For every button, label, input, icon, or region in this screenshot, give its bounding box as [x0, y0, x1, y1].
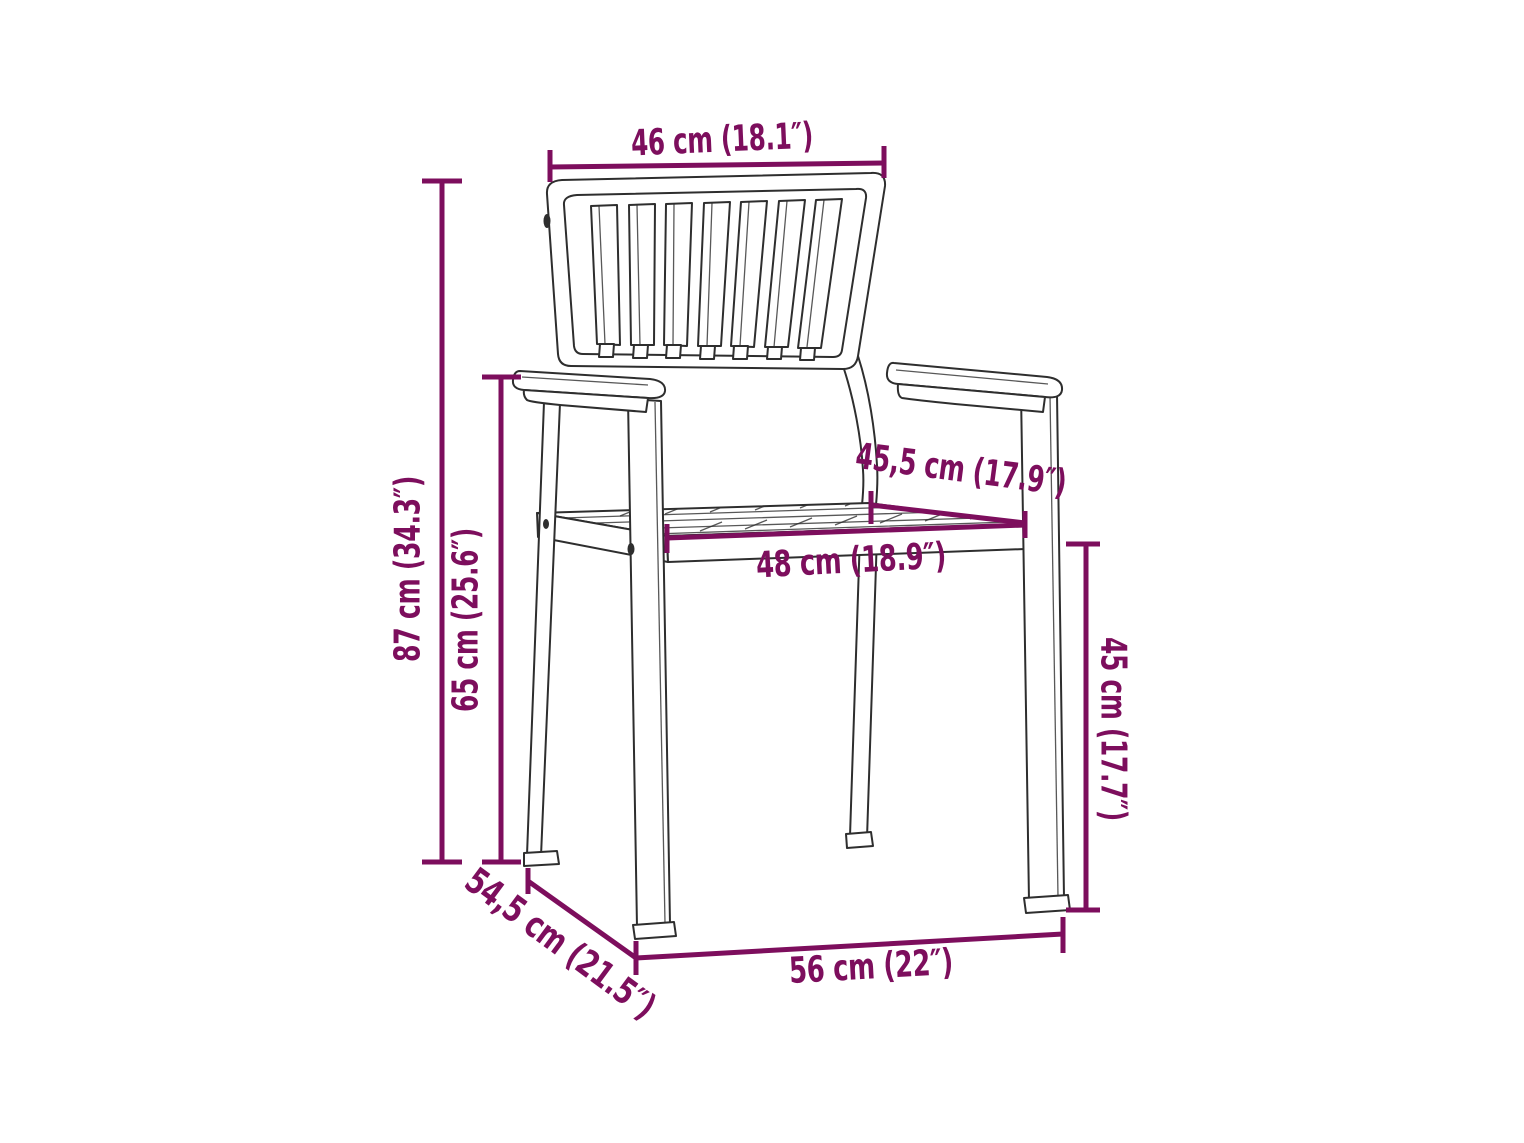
backrest-slat	[664, 203, 692, 346]
backrest-slat	[629, 204, 655, 345]
dim-floor-depth-label: 54,5 cm (21.5″)	[457, 860, 663, 1027]
backrest-right-tube	[844, 356, 877, 505]
rear-right-foot-cap	[846, 832, 873, 848]
dim-seat-height-label: 45 cm (17.7″)	[1093, 637, 1134, 821]
front-left-foot-cap	[633, 922, 676, 939]
screw-dot	[628, 543, 635, 555]
dim-backrest-width-line	[550, 163, 884, 167]
dim-total-height-label: 87 cm (34.3″)	[388, 476, 429, 662]
rear-left-foot-cap	[524, 851, 559, 866]
dim-backrest-width-label: 46 cm (18.1″)	[630, 116, 814, 165]
screw-dot	[543, 519, 549, 529]
dimension-diagram: 46 cm (18.1″) 87 cm (34.3″) 65 cm (25.6″…	[0, 0, 1524, 1143]
backrest-slat	[591, 205, 620, 345]
dim-armrest-height-label: 65 cm (25.6″)	[446, 528, 487, 712]
screw-dot	[544, 214, 551, 228]
front-right-foot-cap	[1024, 895, 1070, 913]
left-armrest	[513, 371, 665, 412]
right-armrest	[887, 363, 1062, 412]
dim-armrest-height	[482, 377, 521, 862]
rear-left-leg	[527, 402, 560, 856]
chair-dimension-diagram-svg: 46 cm (18.1″) 87 cm (34.3″) 65 cm (25.6″…	[0, 0, 1524, 1143]
dim-floor-width-label: 56 cm (22″)	[788, 942, 954, 992]
dim-seat-width-label: 48 cm (18.9″)	[755, 536, 947, 587]
